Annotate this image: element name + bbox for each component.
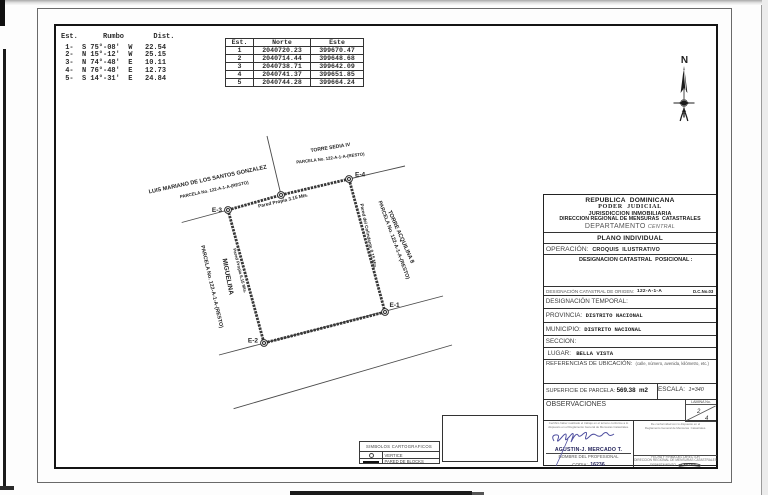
- svg-text:Pared Propia 6.15 Mts.: Pared Propia 6.15 Mts.: [232, 248, 248, 294]
- svg-text:Pared del Colindante 0.15 M: Pared del Colindante 0.15 Mts.: [359, 203, 378, 269]
- svg-text:PARCELA No. 122-A-1-A-(RESTO): PARCELA No. 122-A-1-A-(RESTO): [199, 245, 224, 329]
- svg-text:E-3: E-3: [212, 207, 223, 214]
- svg-text:E-4: E-4: [355, 172, 366, 179]
- svg-text:N: N: [681, 55, 688, 66]
- svg-text:E-1: E-1: [390, 302, 401, 309]
- svg-text:TORRE SEDIA IV: TORRE SEDIA IV: [310, 142, 351, 154]
- svg-text:E-2: E-2: [248, 338, 259, 345]
- svg-text:2: 2: [696, 409, 701, 415]
- svg-text:PARCELA No. 122-A-1-A-(RESTO): PARCELA No. 122-A-1-A-(RESTO): [296, 151, 365, 164]
- svg-text:MIGUELINA: MIGUELINA: [221, 258, 235, 296]
